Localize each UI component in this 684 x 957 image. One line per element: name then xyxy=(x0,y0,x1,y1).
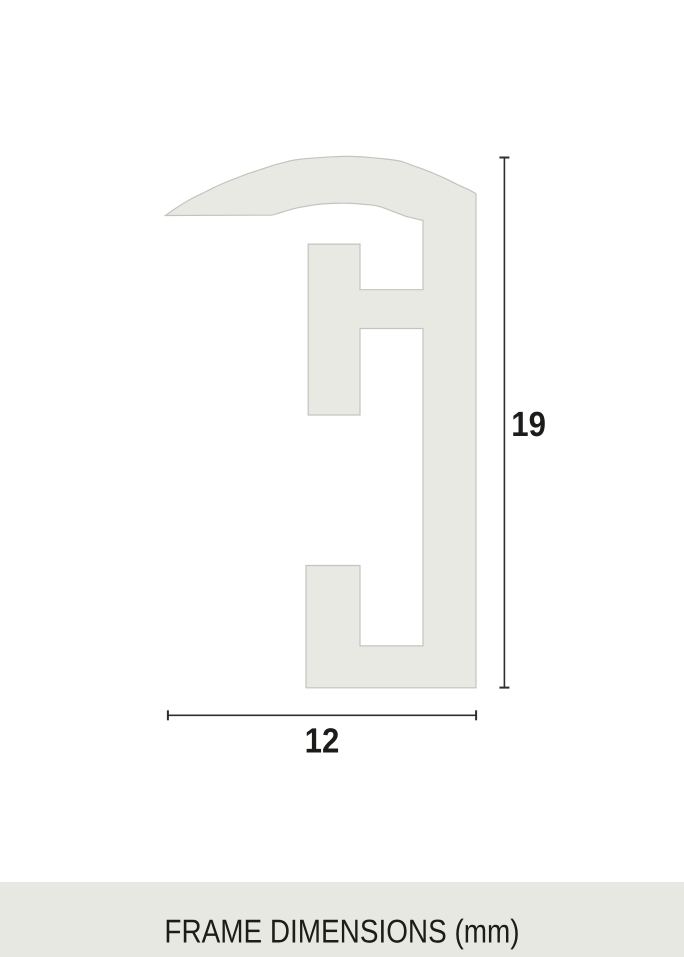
svg-text:19: 19 xyxy=(511,405,546,444)
svg-text:FRAME DIMENSIONS (mm): FRAME DIMENSIONS (mm) xyxy=(164,913,519,950)
svg-text:12: 12 xyxy=(305,722,340,761)
